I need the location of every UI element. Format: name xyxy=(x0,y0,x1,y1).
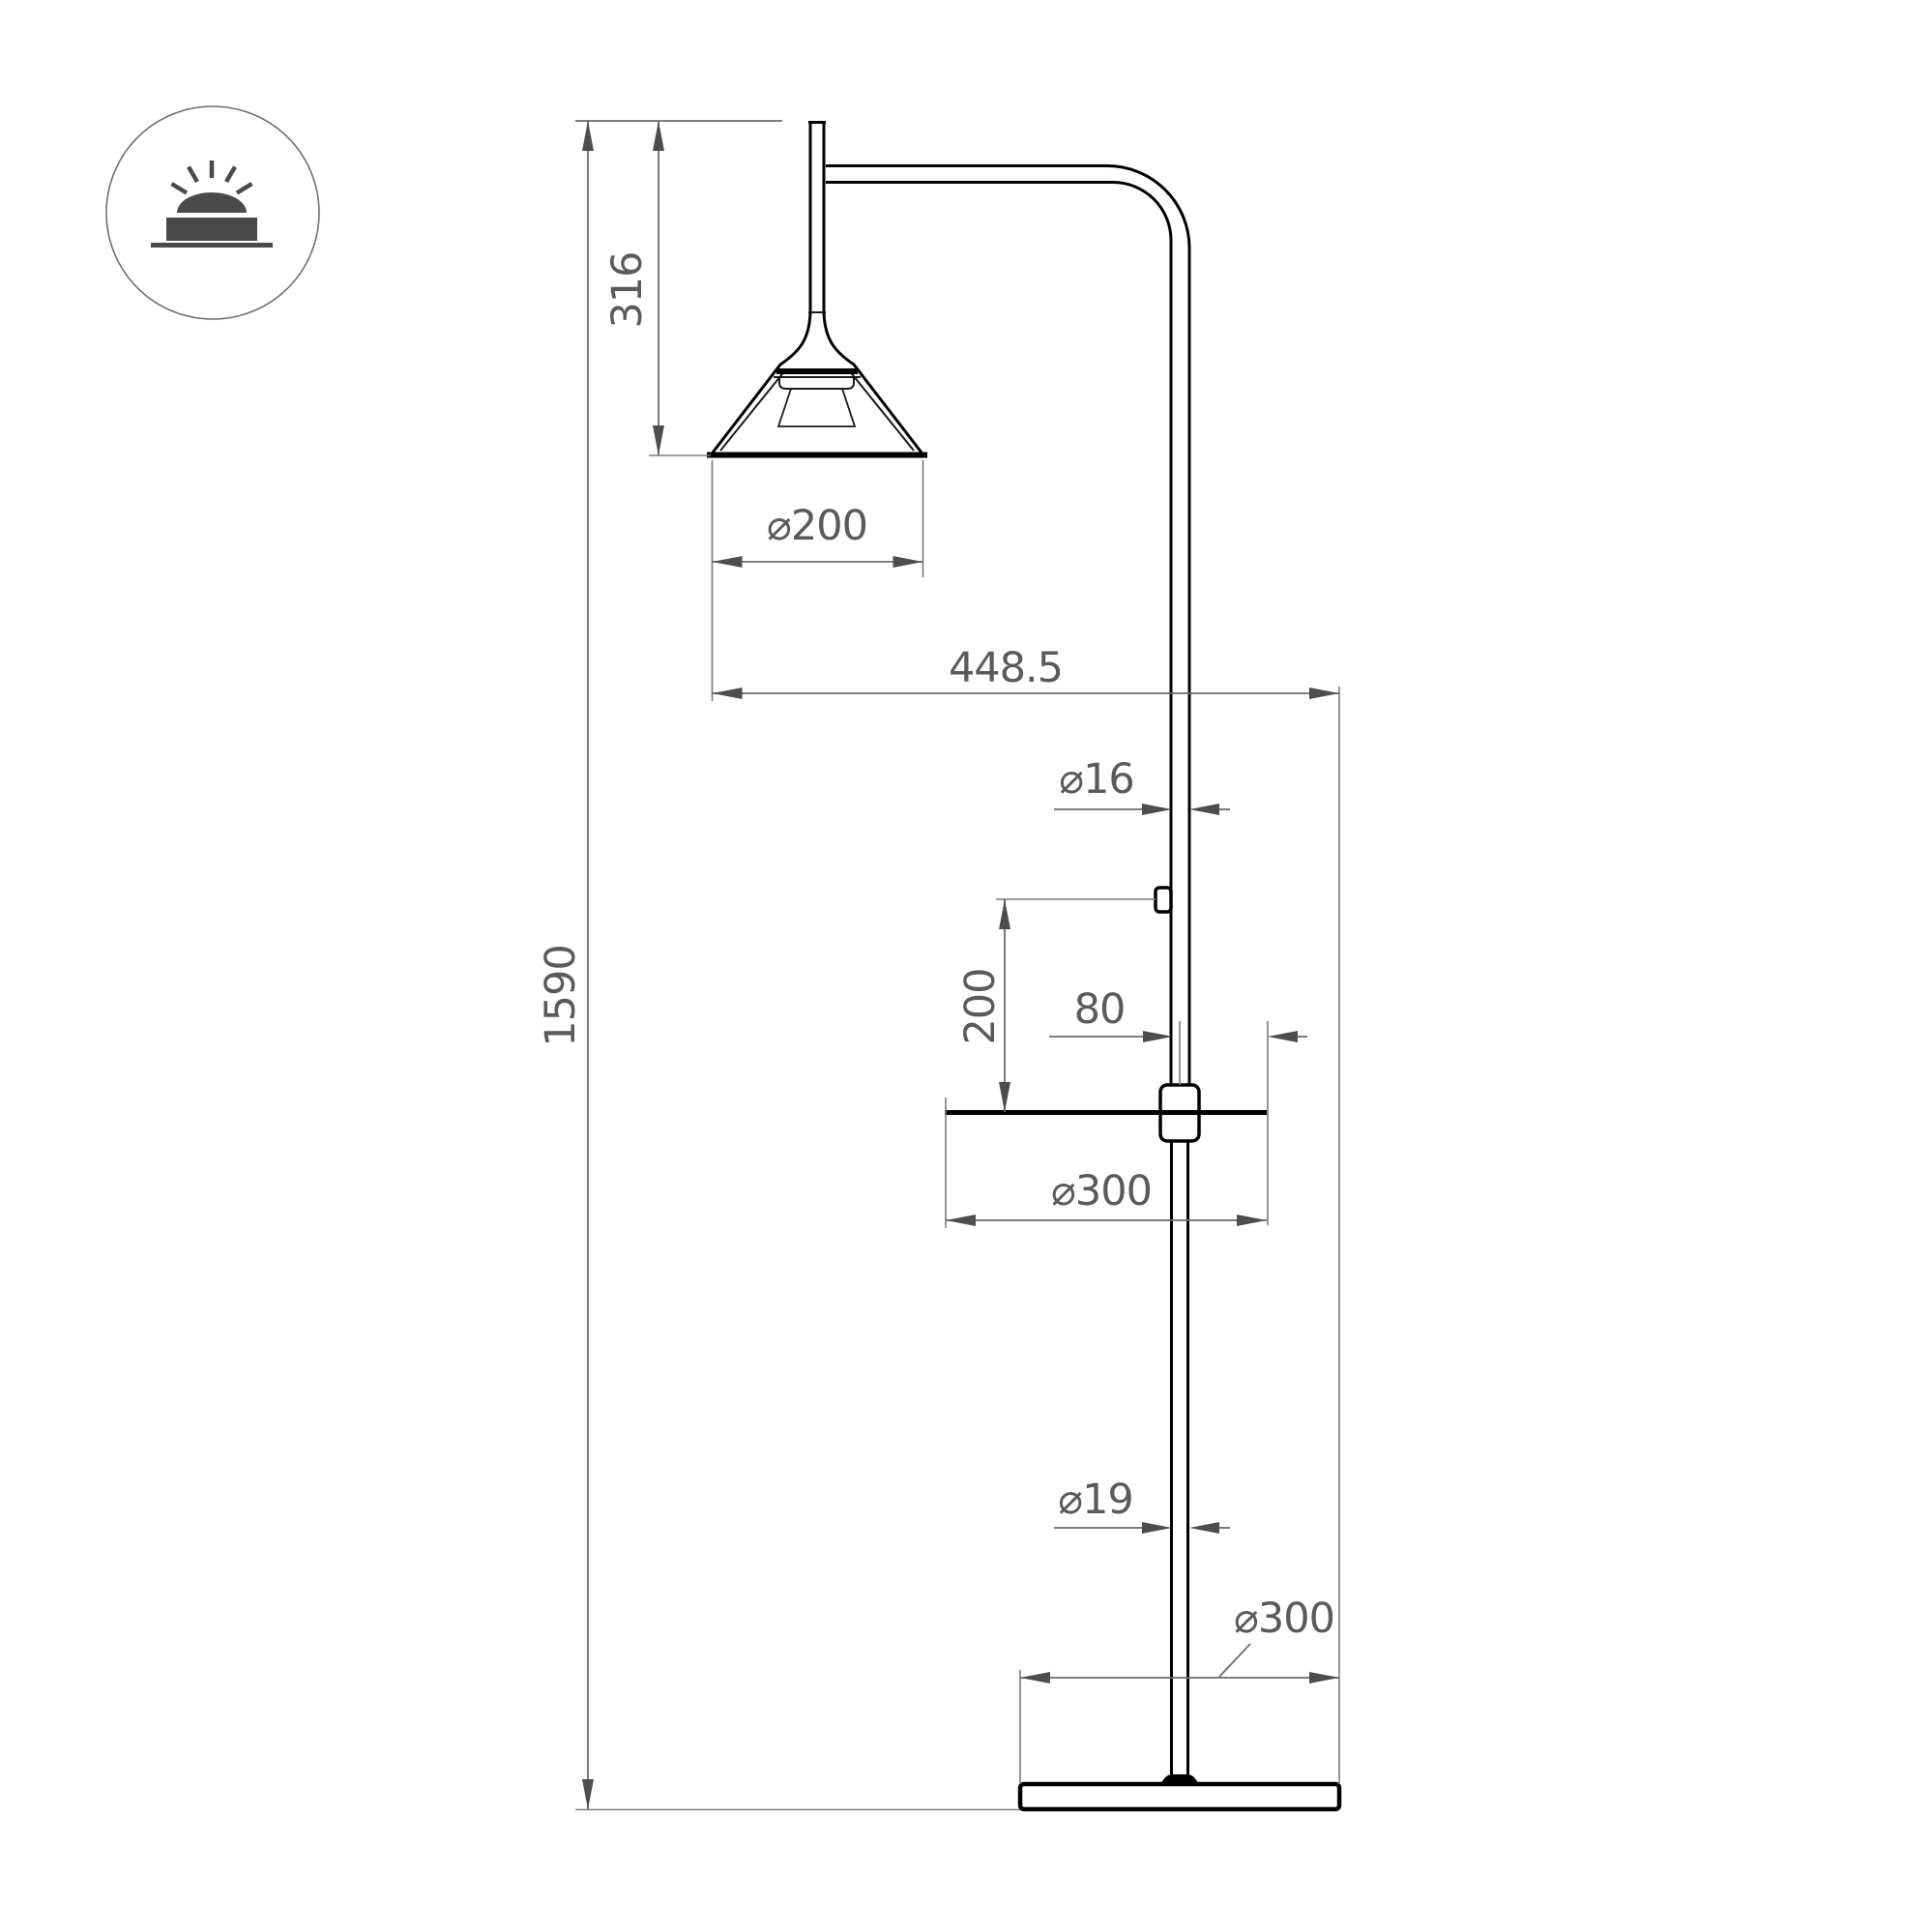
dim-switch-above-table-200: 200 xyxy=(956,899,1156,1112)
dim-label-head-drop: 316 xyxy=(603,251,652,328)
surface-mounted-light-icon xyxy=(106,106,319,319)
dim-label-base-diameter: ⌀300 xyxy=(1234,1595,1334,1643)
lamp-shade xyxy=(707,312,927,455)
icon-lamp-body xyxy=(166,218,257,241)
light-beam-cone xyxy=(778,389,855,426)
dim-label-switch-above-table: 200 xyxy=(956,968,1005,1044)
dim-head-drop-316: 316 xyxy=(603,121,711,455)
dim-label-total-height: 1590 xyxy=(537,945,585,1046)
lamp-dimension-drawing: 1590 316 ⌀200 448.5 ⌀16 200 xyxy=(0,0,1932,1932)
dim-label-upper-pole-diameter: ⌀16 xyxy=(1059,755,1134,804)
lamp-base-plate xyxy=(1020,1784,1339,1809)
dim-label-table-diameter: ⌀300 xyxy=(1051,1167,1152,1215)
icon-lamp-dome xyxy=(177,192,247,213)
shade-inner-wall-left xyxy=(720,370,785,451)
dim-label-table-edge-offset: 80 xyxy=(1074,985,1126,1034)
lamp-arm-and-upper-pole xyxy=(826,166,1189,1087)
icon-light-rays xyxy=(172,161,252,193)
lens-puck xyxy=(779,378,854,389)
dim-total-height-1590: 1590 xyxy=(537,121,782,1809)
dim-label-shade-diameter: ⌀200 xyxy=(767,502,867,550)
icon-ground-bar xyxy=(151,243,273,248)
lamp-lower-pole xyxy=(1172,1141,1188,1784)
technical-drawing-page: 1590 316 ⌀200 448.5 ⌀16 200 xyxy=(0,0,1932,1932)
dim-label-lower-pole-diameter: ⌀19 xyxy=(1058,1476,1133,1524)
dim-upper-pole-diameter-16: ⌀16 xyxy=(1054,755,1230,815)
dim-base-diameter-300: ⌀300 xyxy=(1020,1595,1339,1784)
dim-label-arm-offset: 448.5 xyxy=(949,644,1063,692)
shade-inner-wall-right xyxy=(849,370,914,451)
dim-table-diameter-300: ⌀300 xyxy=(946,1098,1267,1228)
power-switch xyxy=(1156,888,1171,912)
dim-shade-diameter-200: ⌀200 xyxy=(713,460,923,701)
base-diameter-leader-line xyxy=(1219,1644,1250,1677)
dim-lower-pole-diameter-19: ⌀19 xyxy=(1054,1476,1230,1534)
lamp-stem xyxy=(808,121,826,312)
